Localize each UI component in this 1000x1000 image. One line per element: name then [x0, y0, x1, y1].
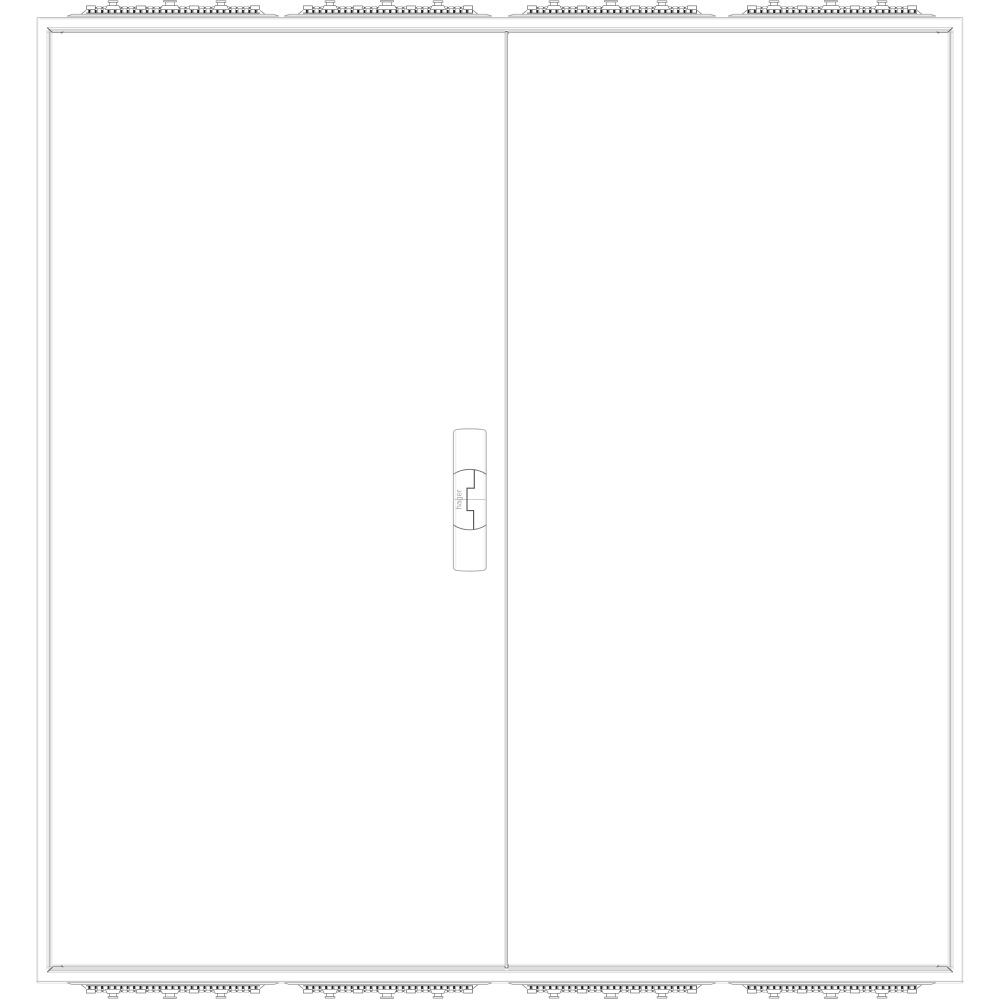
svg-text:hager: hager [455, 489, 464, 509]
